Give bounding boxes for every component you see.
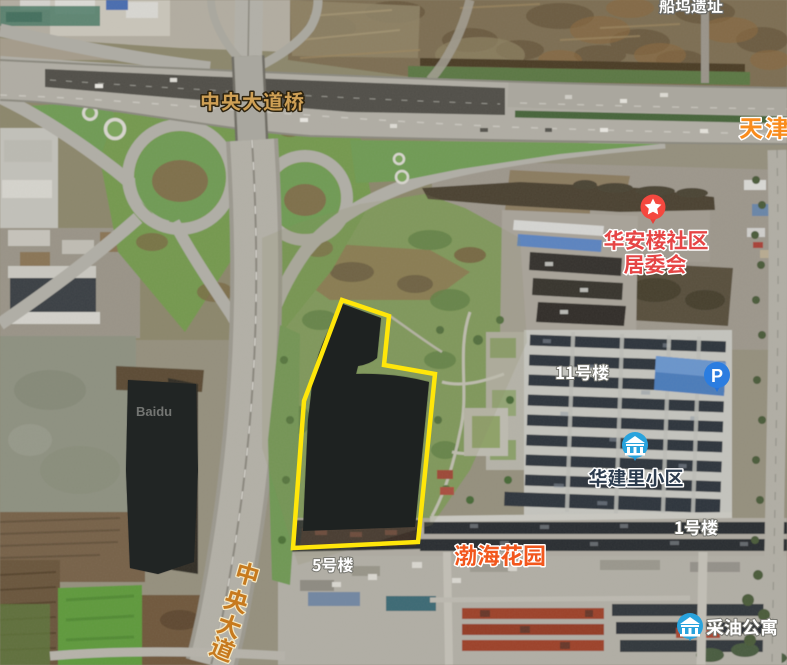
svg-text:Baidu: Baidu — [136, 404, 172, 419]
svg-text:P: P — [711, 366, 723, 386]
